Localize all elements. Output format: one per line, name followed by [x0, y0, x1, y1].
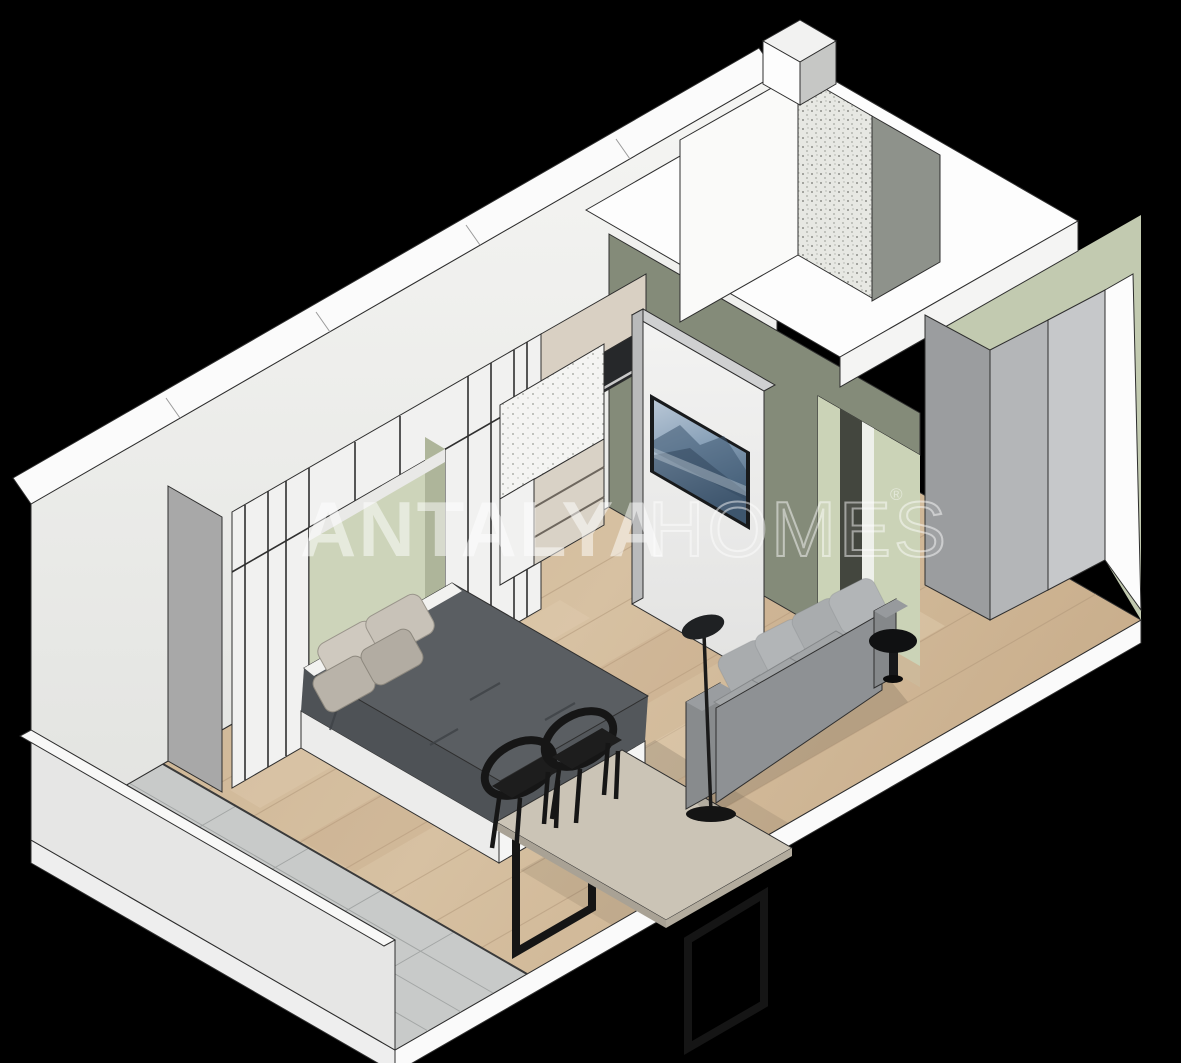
- entrance-cabinet-side: [925, 315, 990, 620]
- lamp-base: [686, 806, 736, 822]
- side-table-base: [883, 675, 903, 683]
- entrance-cabinet-front-right: [1048, 290, 1105, 590]
- apartment-render: ANTALYA HOMES ®: [0, 0, 1181, 1063]
- side-table-top: [869, 629, 917, 653]
- wardrobe-end-panel: [168, 486, 222, 792]
- watermark: ANTALYA HOMES ®: [300, 485, 949, 573]
- watermark-secondary: HOMES: [648, 485, 949, 573]
- isometric-scene: ANTALYA HOMES ®: [0, 0, 1181, 1063]
- watermark-primary: ANTALYA: [300, 485, 667, 573]
- watermark-registered: ®: [890, 485, 903, 504]
- table-leg-frame-right: [688, 894, 764, 1048]
- entrance-cabinet-front-left: [990, 320, 1048, 620]
